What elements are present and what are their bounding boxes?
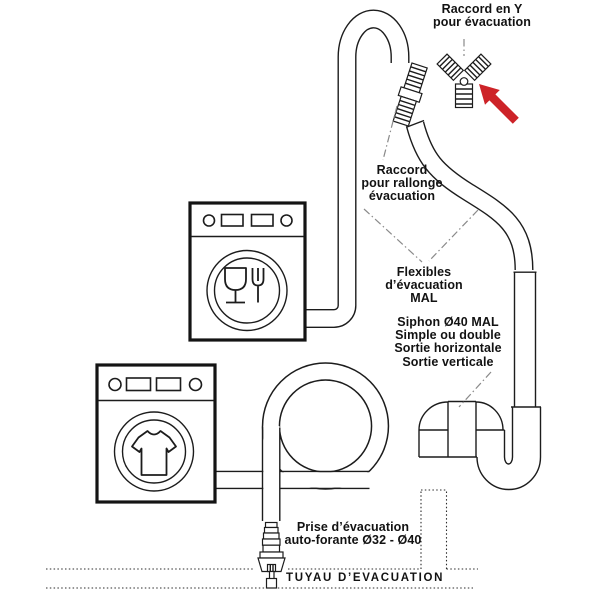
- label-line: Sortie horizontale: [358, 342, 538, 355]
- diagram-canvas: [0, 0, 600, 600]
- label-prise: Prise d’évacuation auto-forante Ø32 - Ø4…: [262, 521, 444, 547]
- washing-machine-icon: [97, 365, 215, 502]
- label-line: Sortie verticale: [358, 356, 538, 369]
- label-tuyau-evacuation: TUYAU D’EVACUATION: [286, 572, 444, 585]
- extension-connector-icon: [390, 62, 430, 127]
- plumbing-diagram: Raccord en Y pour évacuation Raccord pou…: [0, 0, 600, 600]
- label-raccord-rallonge: Raccord pour rallonge évacuation: [322, 164, 482, 204]
- label-line: pour évacuation: [392, 16, 572, 29]
- y-connector-icon: [437, 54, 491, 107]
- label-flexibles: Flexibles d’évacuation MAL: [344, 266, 504, 306]
- label-line: MAL: [344, 292, 504, 305]
- label-line: évacuation: [322, 190, 482, 203]
- label-line: auto-forante Ø32 - Ø40: [262, 534, 444, 547]
- red-arrow-icon: [479, 84, 519, 124]
- dishwasher-icon: [190, 203, 305, 340]
- washing-machine-drain-hose: [210, 372, 380, 524]
- label-siphon: Siphon Ø40 MAL Simple ou double Sortie h…: [358, 316, 538, 369]
- label-raccord-y: Raccord en Y pour évacuation: [392, 3, 572, 29]
